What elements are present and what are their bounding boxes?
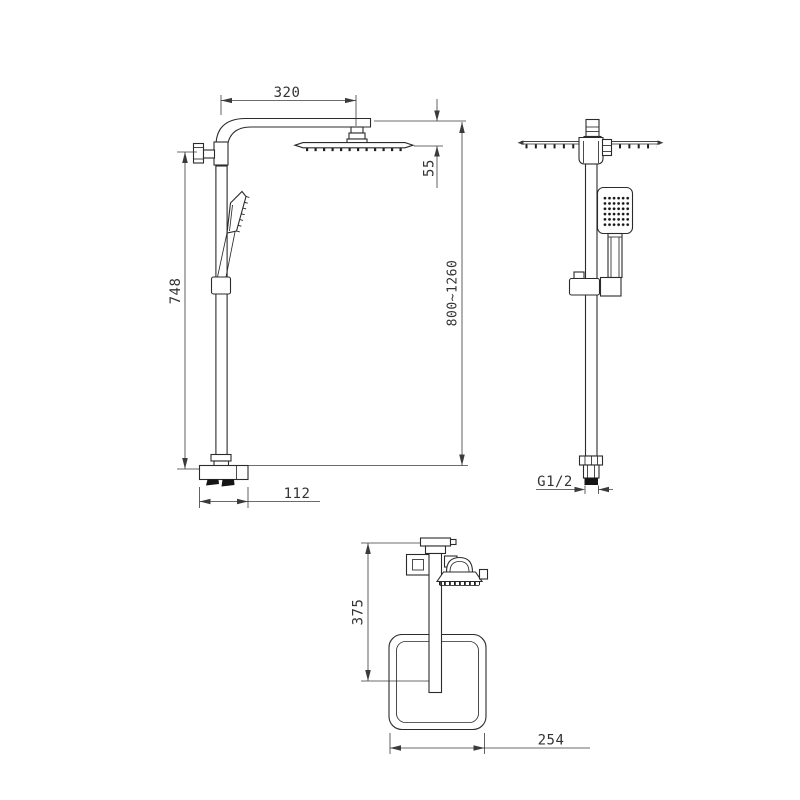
top-view: 375 254 bbox=[351, 538, 591, 754]
dim-inlet-thread: G1/2 bbox=[537, 474, 573, 490]
slider-tab bbox=[574, 272, 584, 279]
thread-end bbox=[585, 478, 599, 485]
slider-block-front bbox=[212, 277, 231, 294]
front-dimensions: 320 55 748 800~1260 112 bbox=[168, 85, 468, 508]
wall-bracket bbox=[194, 144, 215, 164]
hand-shower-side bbox=[570, 188, 633, 297]
spray-nozzles bbox=[603, 196, 630, 227]
dim-height-range: 800~1260 bbox=[446, 260, 461, 327]
dim-head-drop: 55 bbox=[422, 159, 438, 177]
dim-valve-width: 112 bbox=[284, 486, 311, 502]
diverter-valve bbox=[200, 455, 249, 487]
head-connector bbox=[347, 127, 367, 144]
side-dimensions: G1/2 bbox=[536, 474, 613, 494]
inlet-connector bbox=[580, 456, 603, 485]
dim-arm-projection: 375 bbox=[351, 599, 367, 626]
slide-rail bbox=[586, 164, 598, 456]
dim-arm-length: 320 bbox=[274, 85, 301, 101]
riser-column bbox=[214, 142, 228, 456]
slider-block-side bbox=[570, 279, 600, 296]
shower-arm-top bbox=[429, 554, 442, 693]
valve-knob-right bbox=[222, 480, 235, 487]
dim-rail-height: 748 bbox=[168, 278, 184, 305]
handle-holder bbox=[601, 278, 622, 297]
hand-shower-handle bbox=[608, 234, 622, 278]
hand-shower-top bbox=[437, 556, 488, 585]
side-view: G1/2 bbox=[518, 120, 664, 495]
dim-head-width: 254 bbox=[538, 733, 565, 749]
rain-shower-head bbox=[295, 143, 413, 150]
mount-block bbox=[579, 138, 612, 165]
side-nub bbox=[603, 140, 612, 156]
front-view: 320 55 748 800~1260 112 bbox=[168, 85, 468, 508]
valve-knob-left bbox=[206, 480, 219, 486]
technical-drawing: 320 55 748 800~1260 112 bbox=[0, 0, 800, 800]
